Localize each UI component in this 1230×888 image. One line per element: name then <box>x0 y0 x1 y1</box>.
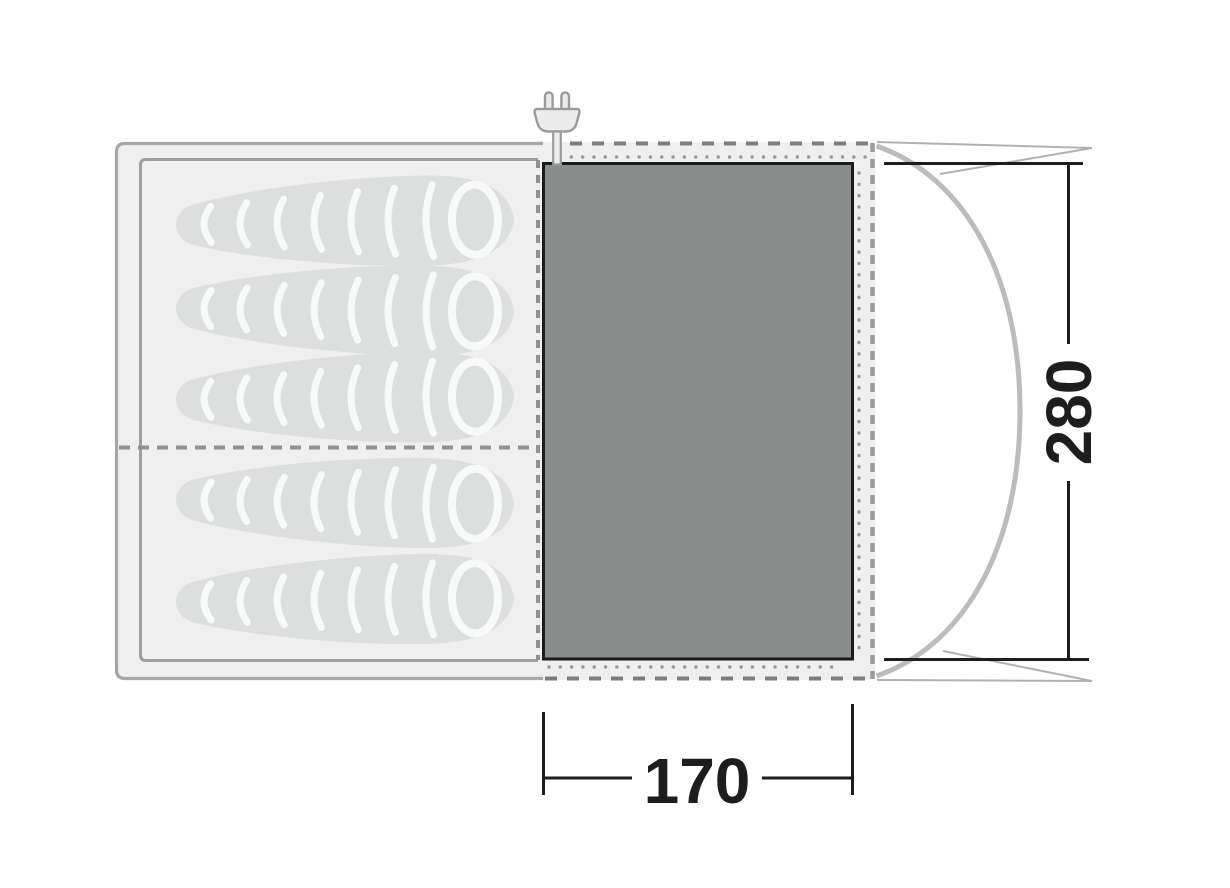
plug-cord <box>553 132 561 165</box>
porch-pole-curve <box>877 146 1021 676</box>
dimension-width-label: 170 <box>644 745 751 817</box>
plug-body <box>535 109 580 132</box>
dimension-depth-label: 280 <box>1033 359 1105 466</box>
groundsheet-floor <box>544 164 853 660</box>
tent-floorplan-diagram: 280 170 <box>0 0 1230 888</box>
floorplan-svg: 280 170 <box>0 0 1230 888</box>
